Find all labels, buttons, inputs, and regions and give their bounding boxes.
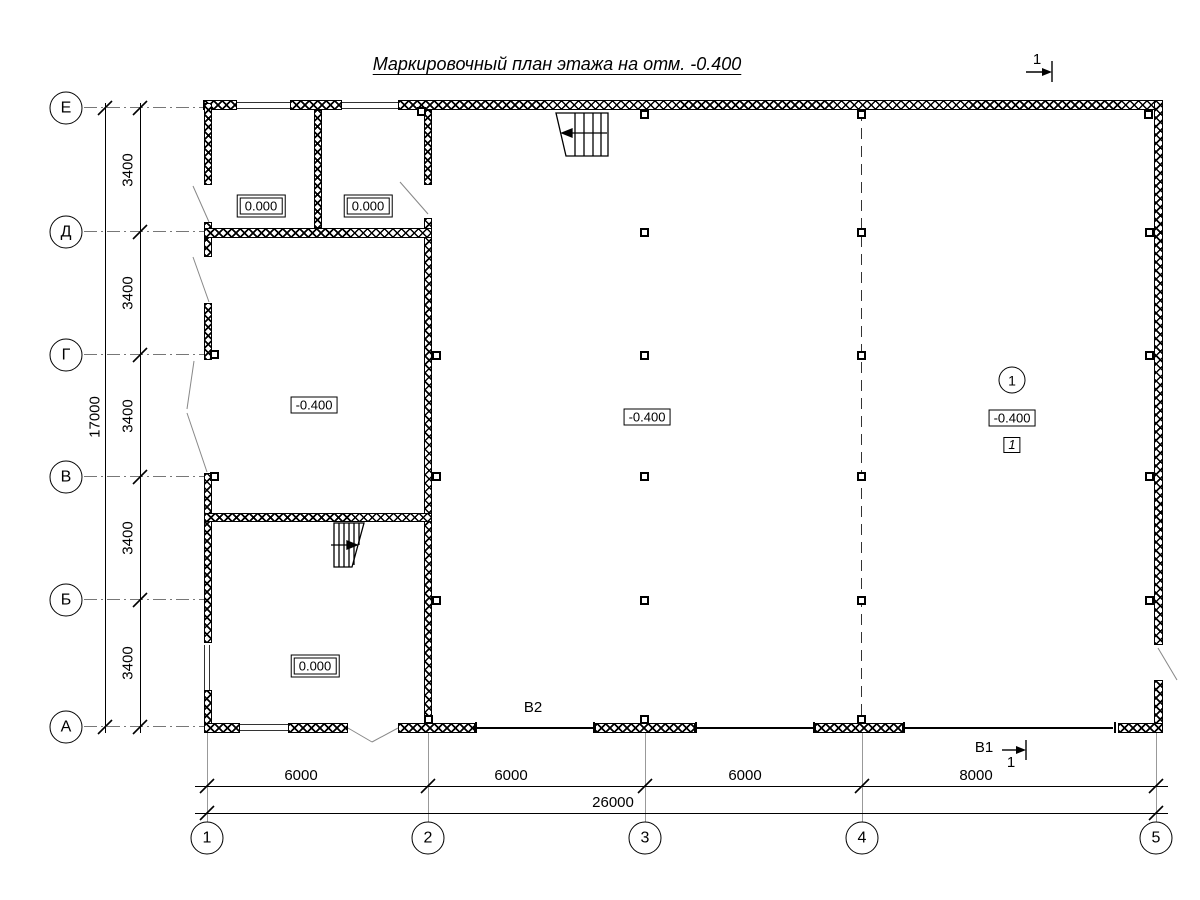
elevation-label: -0.400 — [989, 410, 1036, 427]
axis-col-circle: 4 — [846, 822, 879, 855]
elevation-label: 0.000 — [347, 198, 390, 215]
dimension-label: 6000 — [284, 767, 317, 784]
view-mark-b1-number: 1 — [1007, 754, 1015, 771]
dimension-label: 6000 — [728, 767, 761, 784]
axis-row-label: Б — [61, 591, 72, 609]
axis-col-label: 2 — [424, 829, 433, 847]
axis-row-circle: А — [50, 711, 83, 744]
dimension-label: 3400 — [120, 646, 137, 679]
elevation-label: 0.000 — [240, 198, 283, 215]
axis-col-circle: 5 — [1140, 822, 1173, 855]
axis-row-circle: Е — [50, 92, 83, 125]
dimension-label: 6000 — [494, 767, 527, 784]
elevation-label: -0.400 — [291, 397, 338, 414]
view-mark-b1-label: В1 — [975, 739, 993, 756]
room-number-label: 1 — [1008, 372, 1016, 388]
axis-row-label: В — [61, 468, 72, 486]
axis-col-label: 5 — [1152, 829, 1161, 847]
floor-plan-canvas: Маркировочный план этажа на отм. -0.400 — [0, 0, 1200, 900]
axis-row-circle: Б — [50, 584, 83, 617]
dimension-label-total: 17000 — [87, 396, 104, 438]
room-type-box: 1 — [1003, 437, 1020, 453]
room-number-circle: 1 — [999, 367, 1026, 394]
axis-col-label: 1 — [203, 829, 212, 847]
dimension-label: 3400 — [120, 153, 137, 186]
stairs-icon — [556, 113, 608, 156]
axis-row-circle: В — [50, 461, 83, 494]
elevation-label: -0.400 — [624, 409, 671, 426]
axis-col-circle: 1 — [191, 822, 224, 855]
elevation-label: 0.000 — [294, 658, 337, 675]
dimension-label: 8000 — [959, 767, 992, 784]
view-mark-b2-label: В2 — [524, 699, 542, 716]
axis-row-label: Д — [61, 223, 72, 241]
axis-row-label: А — [61, 718, 72, 736]
axis-row-circle: Г — [50, 339, 83, 372]
section-mark-top-label: 1 — [1033, 51, 1041, 68]
axis-col-label: 3 — [641, 829, 650, 847]
axis-row-label: Г — [62, 346, 71, 364]
axis-row-circle: Д — [50, 216, 83, 249]
dimension-label-total: 26000 — [592, 794, 634, 811]
axis-row-label: Е — [61, 99, 72, 117]
axis-col-circle: 2 — [412, 822, 445, 855]
axis-col-circle: 3 — [629, 822, 662, 855]
dimension-label: 3400 — [120, 276, 137, 309]
dimension-label: 3400 — [120, 399, 137, 432]
dimension-label: 3400 — [120, 521, 137, 554]
axis-col-label: 4 — [858, 829, 867, 847]
stairs-icon — [331, 523, 364, 567]
